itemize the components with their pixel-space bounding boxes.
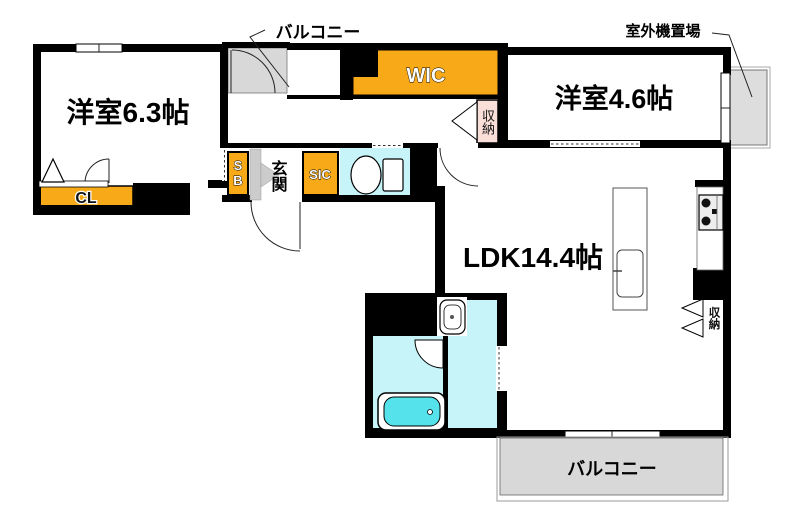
wall-segment — [33, 44, 41, 215]
floor-plan-page: バルコニー 室外機置場 洋室6.3帖 洋室4.6帖 WIC 収納 SB 玄関 S… — [0, 0, 800, 522]
wall-segment — [410, 145, 437, 202]
bathtub-icon — [378, 393, 445, 430]
hall-storage-bifold-door — [452, 102, 477, 140]
label-entrance: 玄関 — [269, 159, 288, 193]
wall-segment — [220, 44, 228, 148]
sink-drain — [450, 315, 454, 319]
stove-burner — [702, 199, 711, 208]
label-kitchen-storage: 収納 — [708, 307, 721, 331]
label-wic: WIC — [407, 65, 446, 87]
label-outdoor-unit: 室外機置場 — [625, 22, 700, 40]
wall-segment — [693, 268, 731, 300]
label-balcony-top: バルコニー — [276, 23, 361, 42]
island-sink — [617, 250, 643, 297]
outdoor-unit-area — [728, 70, 767, 145]
stove-burner — [702, 217, 711, 226]
floorplan-svg: バルコニー 室外機置場 洋室6.3帖 洋室4.6帖 WIC 収納 SB 玄関 S… — [0, 0, 800, 522]
wall-segment — [695, 180, 731, 187]
label-ldk: LDK14.4帖 — [463, 242, 603, 273]
door-arc-bedroom1 — [85, 159, 109, 183]
stove-control — [712, 209, 717, 214]
step-strip — [250, 149, 261, 200]
label-shoe-box: SB — [231, 158, 246, 188]
label-closet: CL — [75, 190, 97, 207]
wall-segment — [340, 43, 353, 100]
wall-segment — [723, 47, 731, 75]
opening-washroom — [496, 346, 507, 391]
label-bedroom2: 洋室4.6帖 — [555, 83, 674, 114]
opening-hall-ldk — [438, 143, 478, 148]
wall-segment — [287, 43, 506, 50]
wall-segment — [302, 195, 437, 202]
door-arc-entrance — [251, 202, 300, 251]
door-arc-hall-ldk — [440, 148, 478, 186]
wall-segment — [287, 95, 506, 99]
closet-bifold-door — [42, 159, 64, 182]
wall-segment — [133, 183, 190, 207]
kitchen-storage-door-top — [682, 299, 703, 317]
toilet-tank — [383, 159, 403, 191]
toilet-icon — [351, 156, 403, 194]
wall-segment — [208, 180, 228, 188]
wall-segment — [33, 44, 228, 52]
label-sic: SIC — [309, 167, 331, 182]
wall-segment — [435, 186, 445, 300]
kitchen-counter — [697, 187, 723, 270]
kitchen-storage-door-bottom — [682, 319, 703, 337]
kitchen-island — [613, 188, 647, 310]
sink-icon — [440, 300, 465, 334]
label-bedroom1: 洋室6.3帖 — [67, 96, 190, 128]
toilet-bowl — [351, 156, 381, 194]
label-hall-storage: 収納 — [480, 109, 495, 136]
wall-segment — [498, 43, 508, 148]
wall-segment — [500, 47, 731, 55]
bathtub-drain — [428, 410, 433, 415]
balcony-top-area — [228, 48, 287, 93]
label-balcony-bottom: バルコニー — [567, 459, 657, 479]
wall-segment — [222, 195, 252, 202]
